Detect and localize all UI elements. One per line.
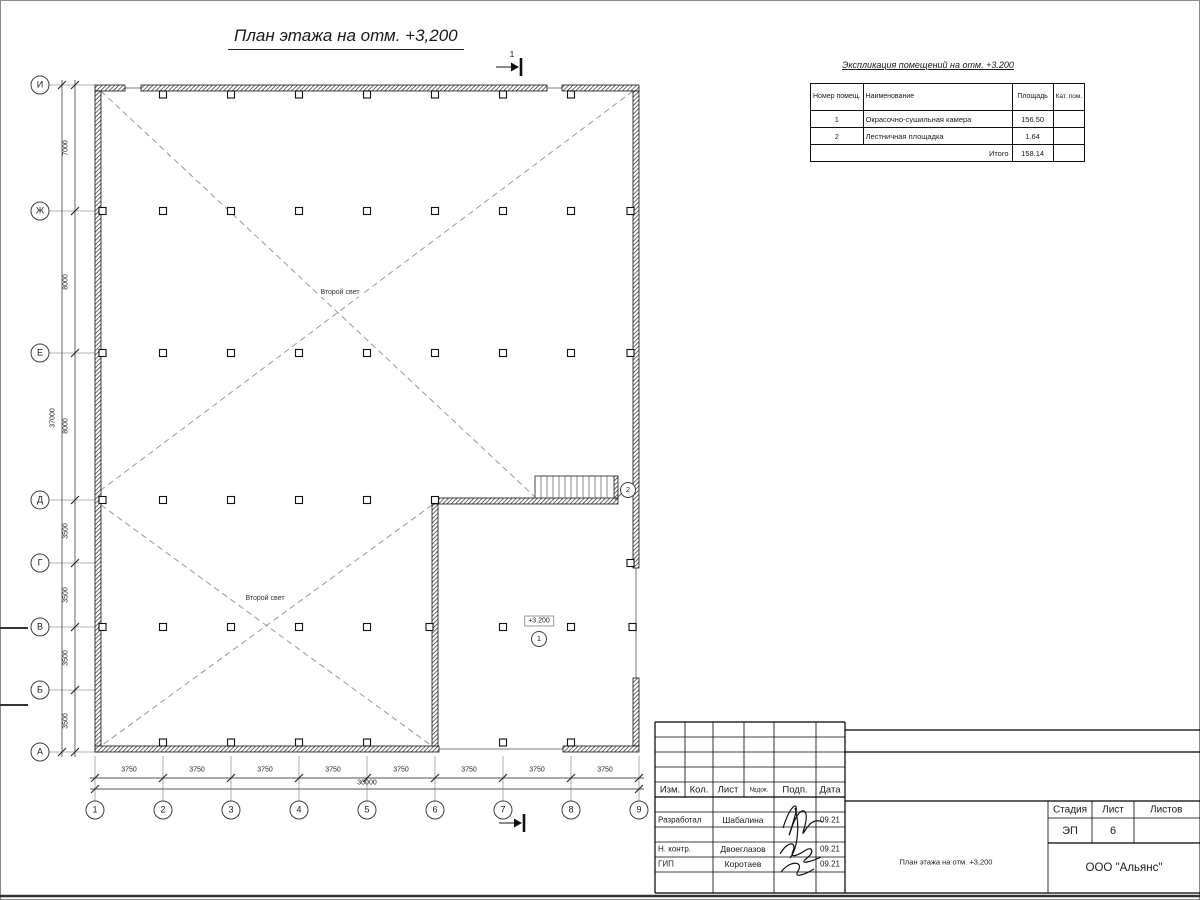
section-mark-top-label: 1: [510, 49, 515, 59]
tb-date-gip: 09.21: [820, 860, 840, 869]
dim-label: 3750: [597, 767, 613, 774]
room-number: 2: [811, 128, 864, 145]
elevation-mark: +3.200: [524, 616, 554, 627]
dim-label: 3750: [325, 767, 341, 774]
void-label-upper: Второй свет: [319, 289, 361, 297]
dim-label: 3750: [529, 767, 545, 774]
signature-gip: [781, 863, 814, 875]
axis-bubble-row-v: В: [31, 618, 50, 637]
axis-bubble-col-5: 5: [358, 801, 377, 820]
columns: [99, 91, 636, 746]
tb-date-developer: 09.21: [820, 816, 840, 825]
tb-stage-value: ЭП: [1062, 825, 1078, 837]
dim-total-label: 30000: [357, 780, 376, 787]
tb-role-gip: ГИП: [658, 860, 674, 869]
dim-label: 3750: [461, 767, 477, 774]
dim-label: 3750: [121, 767, 137, 774]
axis-bubble-col-6: 6: [426, 801, 445, 820]
axis-bubble-row-zh: Ж: [31, 202, 50, 221]
stairs: [535, 476, 621, 500]
tb-name-developer: Шабалина: [722, 815, 763, 825]
tb-sheets-label: Листов: [1150, 805, 1183, 816]
dim-label: 3500: [63, 523, 70, 539]
schedule-row: 1 Окрасочно-сушильная камера 156.50: [811, 111, 1085, 128]
tb-header-podp: Подп.: [782, 785, 807, 796]
tb-name-ncontrol: Двоеглазов: [720, 844, 765, 854]
dim-label: 8000: [63, 418, 70, 434]
tb-header-ndok: №док.: [749, 787, 768, 794]
dim-label: 3750: [189, 767, 205, 774]
tb-header-izm: Изм.: [660, 785, 680, 796]
axis-bubble-col-2: 2: [154, 801, 173, 820]
schedule-header-name: Наименование: [863, 84, 1012, 111]
tb-date-ncontrol: 09.21: [820, 845, 840, 854]
dim-label: 3500: [63, 713, 70, 729]
axis-grid-lines: [49, 85, 639, 801]
axis-bubble-col-8: 8: [562, 801, 581, 820]
room-area: 156.50: [1012, 111, 1053, 128]
room-name: Лестничная площадка: [863, 128, 1012, 145]
drawing-title: План этажа на отм. +3,200: [228, 26, 464, 50]
wall-openings: [125, 88, 636, 749]
dim-label: 3500: [63, 650, 70, 666]
dimension-ticks: [58, 81, 643, 793]
schedule-header-cat: Кат. пом.: [1053, 84, 1085, 111]
schedule-total-cat: [1053, 145, 1085, 162]
drawing-sheet: План этажа на отм. +3,200 1 1 И Ж Е Д Г …: [0, 0, 1200, 900]
tb-name-gip: Коротаев: [725, 859, 762, 869]
schedule-header-number: Номер помещ.: [811, 84, 864, 111]
schedule-header-area: Площадь: [1012, 84, 1053, 111]
tb-company: ООО "Альянс": [1086, 862, 1163, 874]
dim-label: 8000: [63, 274, 70, 290]
signature-developer: [783, 806, 823, 835]
section-mark-top: [496, 58, 521, 76]
walls: [95, 85, 639, 752]
room-bubble-1: 1: [531, 631, 547, 647]
schedule-total-value: 158.14: [1012, 145, 1053, 162]
tb-role-developer: Разработал: [658, 816, 702, 825]
tb-header-data: Дата: [819, 785, 840, 796]
axis-bubble-col-1: 1: [86, 801, 105, 820]
dim-label: 3750: [257, 767, 273, 774]
signature-ncontrol: [780, 844, 821, 862]
axis-bubble-row-g: Г: [31, 554, 50, 573]
tb-header-list: Лист: [718, 785, 739, 796]
axis-bubble-row-d: Д: [31, 491, 50, 510]
room-cat: [1053, 111, 1085, 128]
room-cat: [1053, 128, 1085, 145]
schedule-total-label: Итого: [811, 145, 1013, 162]
dim-label: 3750: [393, 767, 409, 774]
tb-drawing-name: План этажа на отм. +3,200: [900, 858, 993, 867]
schedule-total-row: Итого 158.14: [811, 145, 1085, 162]
axis-bubble-col-7: 7: [494, 801, 513, 820]
dim-label: 7000: [63, 140, 70, 156]
tb-sheet-label: Лист: [1102, 805, 1124, 816]
axis-bubble-col-4: 4: [290, 801, 309, 820]
tb-sheet-value: 6: [1110, 825, 1116, 837]
tb-stage-label: Стадия: [1053, 805, 1087, 816]
room-number: 1: [811, 111, 864, 128]
axis-bubble-row-e: Е: [31, 344, 50, 363]
tb-role-ncontrol: Н. контр.: [658, 845, 691, 854]
tb-header-kol: Кол.: [690, 785, 709, 796]
axis-bubble-row-b: Б: [31, 681, 50, 700]
signatures: [780, 806, 823, 875]
void-label-lower: Второй свет: [244, 595, 286, 603]
axis-bubble-row-i: И: [31, 76, 50, 95]
room-bubble-2: 2: [620, 482, 636, 498]
dimension-lines: [62, 80, 644, 789]
axis-bubble-col-3: 3: [222, 801, 241, 820]
axis-bubble-row-a: А: [31, 743, 50, 762]
room-schedule-table: Номер помещ. Наименование Площадь Кат. п…: [810, 83, 1085, 162]
void-cross-lines: [101, 91, 633, 746]
schedule-row: 2 Лестничная площадка 1.64: [811, 128, 1085, 145]
room-name: Окрасочно-сушильная камера: [863, 111, 1012, 128]
schedule-title: Экспликация помещений на отм. +3.200: [842, 60, 1014, 70]
room-schedule: Номер помещ. Наименование Площадь Кат. п…: [810, 83, 1085, 162]
dim-total-label: 37000: [50, 408, 57, 427]
axis-bubble-col-9: 9: [630, 801, 649, 820]
room-area: 1.64: [1012, 128, 1053, 145]
dim-label: 3500: [63, 587, 70, 603]
